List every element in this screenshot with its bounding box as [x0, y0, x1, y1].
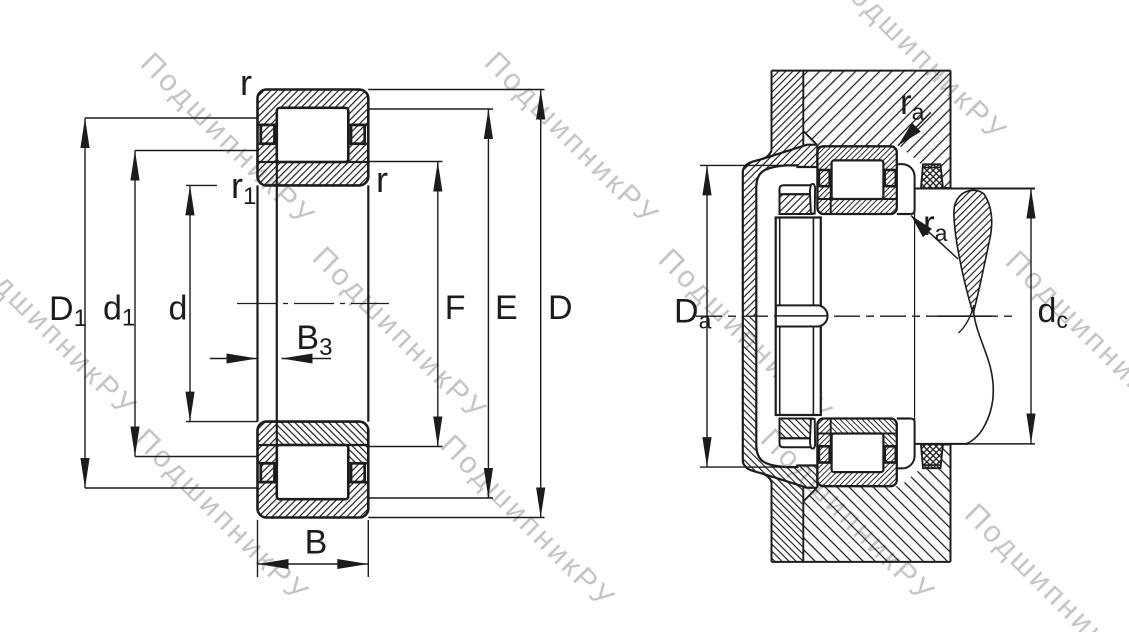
- svg-text:B: B: [305, 524, 328, 562]
- svg-text:r: r: [240, 62, 252, 103]
- svg-text:F: F: [445, 289, 466, 327]
- svg-text:D: D: [548, 289, 573, 327]
- svg-text:r: r: [376, 159, 388, 200]
- svg-text:d: d: [169, 290, 188, 328]
- svg-text:E: E: [495, 289, 518, 327]
